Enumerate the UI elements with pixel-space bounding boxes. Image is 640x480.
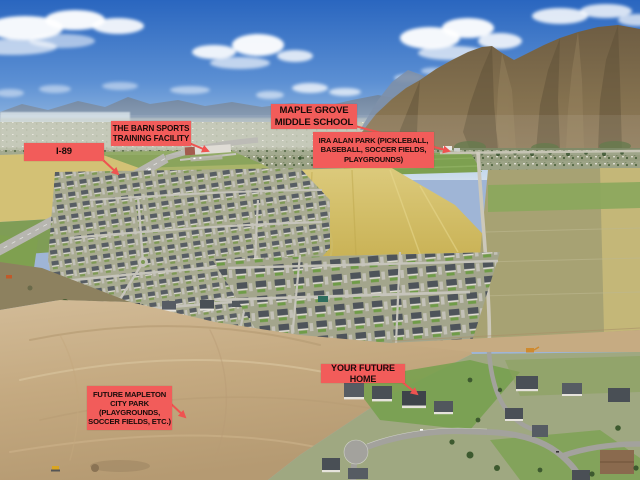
label-maple-grove-school: MAPLE GROVE MIDDLE SCHOOL: [271, 104, 357, 129]
label-i89: I-89: [24, 143, 104, 161]
label-ira-alan-park: IRA ALAN PARK (PICKLEBALL, BASEBALL, SOC…: [313, 132, 434, 168]
annotated-aerial-photo: I-89 THE BARN SPORTS TRAINING FACILITY M…: [0, 0, 640, 480]
label-your-future-home: YOUR FUTURE HOME: [321, 364, 405, 383]
label-barn-sports: THE BARN SPORTS TRAINING FACILITY: [111, 121, 191, 146]
label-future-mapleton-city-park: FUTURE MAPLETON CITY PARK (PLAYGROUNDS, …: [87, 386, 172, 430]
